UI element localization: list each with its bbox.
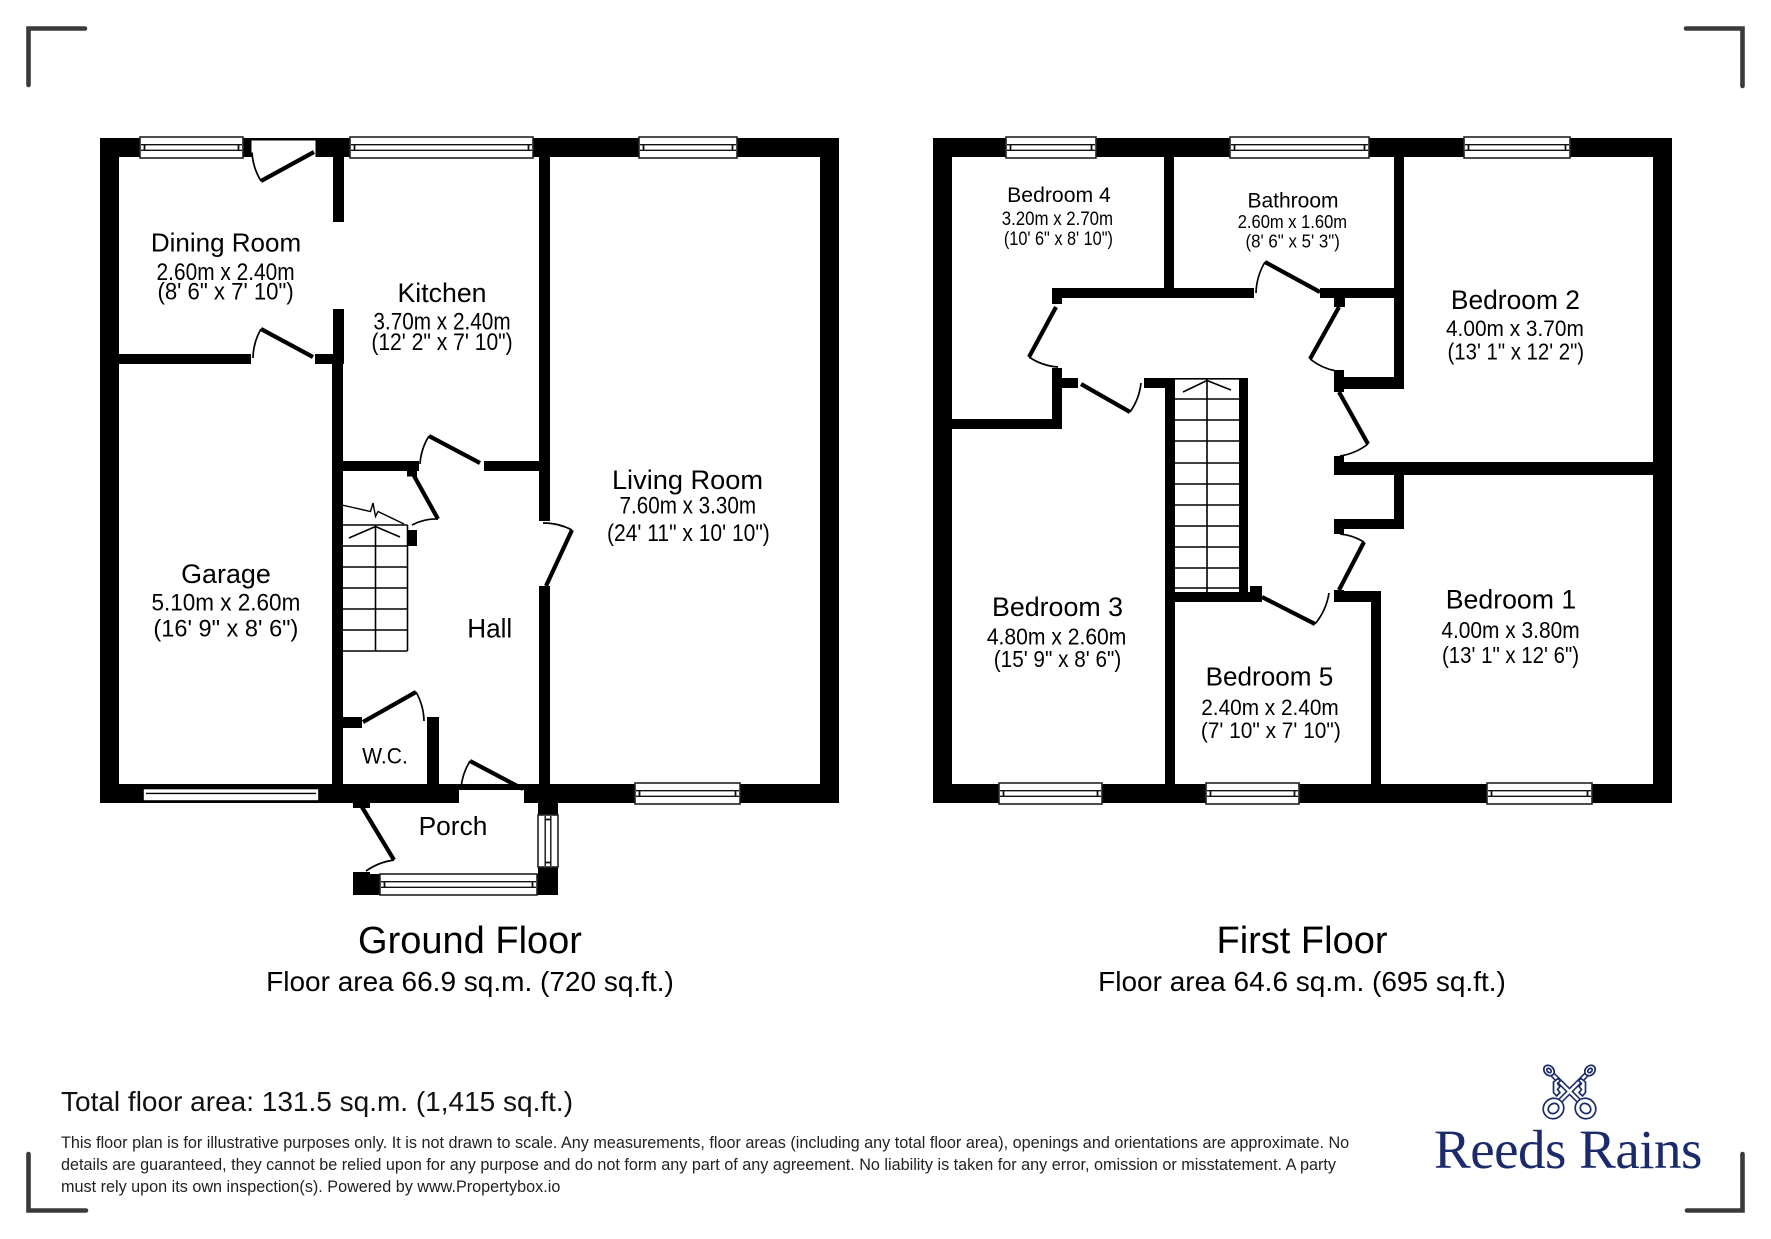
svg-text:3.20m x 2.70m: 3.20m x 2.70m	[1002, 207, 1113, 230]
svg-text:Floor area 64.6 sq.m. (695 sq.: Floor area 64.6 sq.m. (695 sq.ft.)	[1098, 966, 1506, 997]
svg-text:(7' 10" x 7' 10"): (7' 10" x 7' 10")	[1201, 719, 1341, 744]
svg-text:Porch: Porch	[419, 811, 488, 841]
svg-text:Ground Floor: Ground Floor	[358, 920, 582, 962]
svg-text:4.00m x 3.80m: 4.00m x 3.80m	[1441, 617, 1579, 643]
svg-text:(16' 9" x 8' 6"): (16' 9" x 8' 6")	[153, 616, 298, 642]
svg-text:Garage: Garage	[181, 559, 271, 589]
svg-text:This floor plan is for illustr: This floor plan is for illustrative purp…	[61, 1134, 1349, 1152]
svg-text:Bedroom 1: Bedroom 1	[1446, 585, 1577, 615]
svg-text:Floor area 66.9 sq.m. (720 sq.: Floor area 66.9 sq.m. (720 sq.ft.)	[266, 966, 674, 997]
svg-text:(24' 11" x 10' 10"): (24' 11" x 10' 10")	[607, 520, 770, 546]
svg-text:must rely upon its own inspect: must rely upon its own inspection(s). Po…	[61, 1178, 560, 1196]
svg-text:Bathroom: Bathroom	[1247, 190, 1338, 213]
svg-text:Bedroom 4: Bedroom 4	[1007, 184, 1111, 207]
svg-text:Hall: Hall	[467, 613, 512, 644]
svg-text:Dining Room: Dining Room	[151, 228, 301, 258]
svg-text:Bedroom 2: Bedroom 2	[1451, 285, 1580, 315]
svg-text:Kitchen: Kitchen	[397, 278, 486, 308]
svg-text:(13' 1" x 12' 6"): (13' 1" x 12' 6")	[1442, 642, 1579, 669]
svg-text:Bedroom 3: Bedroom 3	[992, 592, 1123, 622]
svg-text:Reeds Rains: Reeds Rains	[1434, 1119, 1702, 1180]
svg-text:2.40m x 2.40m: 2.40m x 2.40m	[1201, 695, 1339, 720]
svg-text:2.60m x 1.60m: 2.60m x 1.60m	[1238, 211, 1347, 232]
svg-text:Bedroom 5: Bedroom 5	[1206, 662, 1334, 692]
svg-text:7.60m x 3.30m: 7.60m x 3.30m	[620, 492, 756, 519]
svg-text:(10' 6" x 8' 10"): (10' 6" x 8' 10")	[1004, 228, 1113, 250]
svg-text:Total floor area: 131.5 sq.m.: Total floor area: 131.5 sq.m. (1,415 sq.…	[61, 1086, 573, 1117]
svg-text:(13' 1" x 12' 2"): (13' 1" x 12' 2")	[1447, 338, 1584, 364]
svg-text:details are guaranteed, they c: details are guaranteed, they cannot be r…	[61, 1156, 1337, 1174]
svg-text:(12' 2" x 7' 10"): (12' 2" x 7' 10")	[371, 329, 512, 356]
svg-text:(15' 9" x 8' 6"): (15' 9" x 8' 6")	[994, 646, 1121, 672]
svg-text:(8' 6" x 7' 10"): (8' 6" x 7' 10")	[157, 278, 293, 305]
svg-text:Living Room: Living Room	[612, 464, 763, 495]
svg-text:(8' 6" x 5' 3"): (8' 6" x 5' 3")	[1245, 231, 1339, 252]
svg-text:5.10m x 2.60m: 5.10m x 2.60m	[151, 589, 300, 616]
svg-text:First Floor: First Floor	[1217, 920, 1388, 962]
svg-text:W.C.: W.C.	[362, 743, 408, 769]
